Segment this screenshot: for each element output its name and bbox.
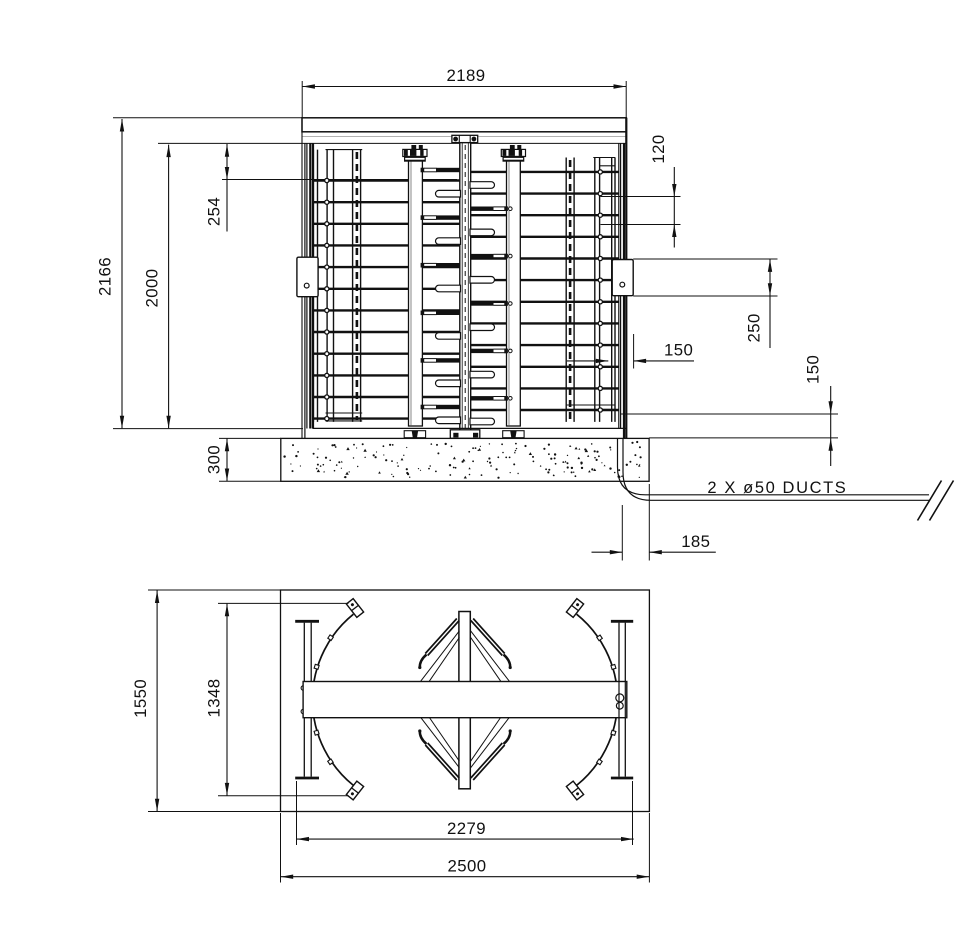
svg-text:2279: 2279 [447,819,486,838]
svg-text:150: 150 [804,355,823,384]
svg-text:300: 300 [205,445,224,474]
svg-text:2000: 2000 [143,269,162,308]
svg-text:254: 254 [205,197,224,226]
svg-text:2189: 2189 [447,66,486,85]
svg-text:1550: 1550 [131,679,150,718]
svg-text:1348: 1348 [205,679,224,718]
svg-text:2500: 2500 [448,857,487,876]
svg-text:150: 150 [664,341,693,360]
svg-text:120: 120 [649,134,668,163]
svg-text:185: 185 [681,532,710,551]
svg-text:2 X ø50 DUCTS: 2 X ø50 DUCTS [707,479,847,497]
svg-text:250: 250 [744,313,763,342]
svg-text:2166: 2166 [96,257,115,296]
